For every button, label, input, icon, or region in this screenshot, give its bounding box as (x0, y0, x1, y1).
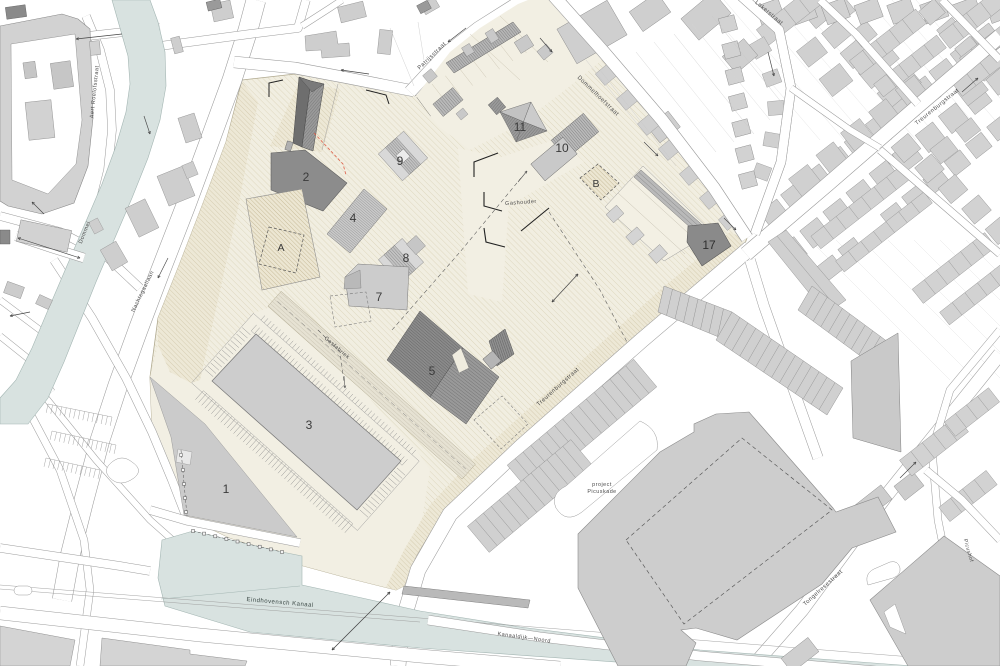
svg-text:9: 9 (397, 154, 404, 168)
svg-text:4: 4 (350, 211, 357, 225)
svg-text:2: 2 (303, 170, 310, 184)
svg-text:7: 7 (376, 290, 383, 304)
svg-text:5: 5 (429, 364, 436, 378)
svg-text:10: 10 (555, 141, 569, 155)
svg-text:B: B (592, 178, 599, 190)
svg-text:3: 3 (306, 418, 313, 432)
svg-text:1: 1 (223, 482, 230, 496)
svg-text:A: A (277, 242, 284, 254)
svg-text:11: 11 (514, 120, 527, 134)
svg-text:Picuskade: Picuskade (587, 489, 616, 495)
svg-text:8: 8 (403, 251, 410, 265)
svg-text:17: 17 (702, 238, 716, 252)
svg-text:project: project (592, 482, 612, 488)
